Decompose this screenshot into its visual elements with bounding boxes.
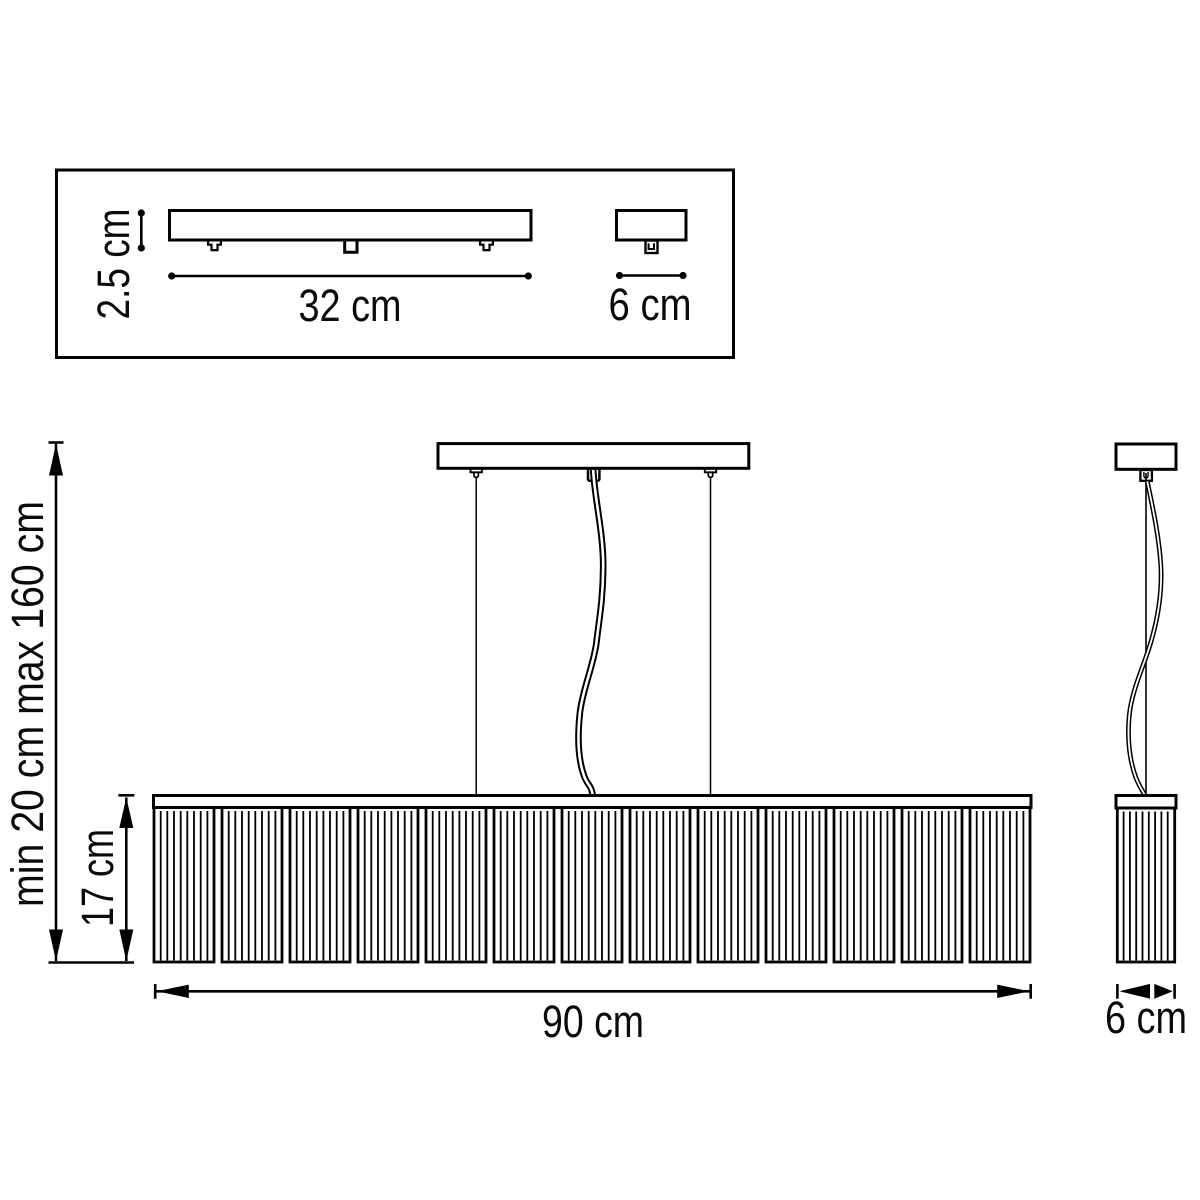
svg-text:2.5 cm: 2.5 cm bbox=[88, 209, 139, 320]
svg-text:32 cm: 32 cm bbox=[299, 280, 402, 331]
svg-text:17 cm: 17 cm bbox=[72, 829, 123, 927]
svg-text:min 20 cm max 160 cm: min 20 cm max 160 cm bbox=[2, 501, 53, 907]
svg-text:6 cm: 6 cm bbox=[1105, 992, 1187, 1043]
svg-text:6 cm: 6 cm bbox=[609, 279, 692, 330]
svg-text:90 cm: 90 cm bbox=[542, 996, 644, 1047]
